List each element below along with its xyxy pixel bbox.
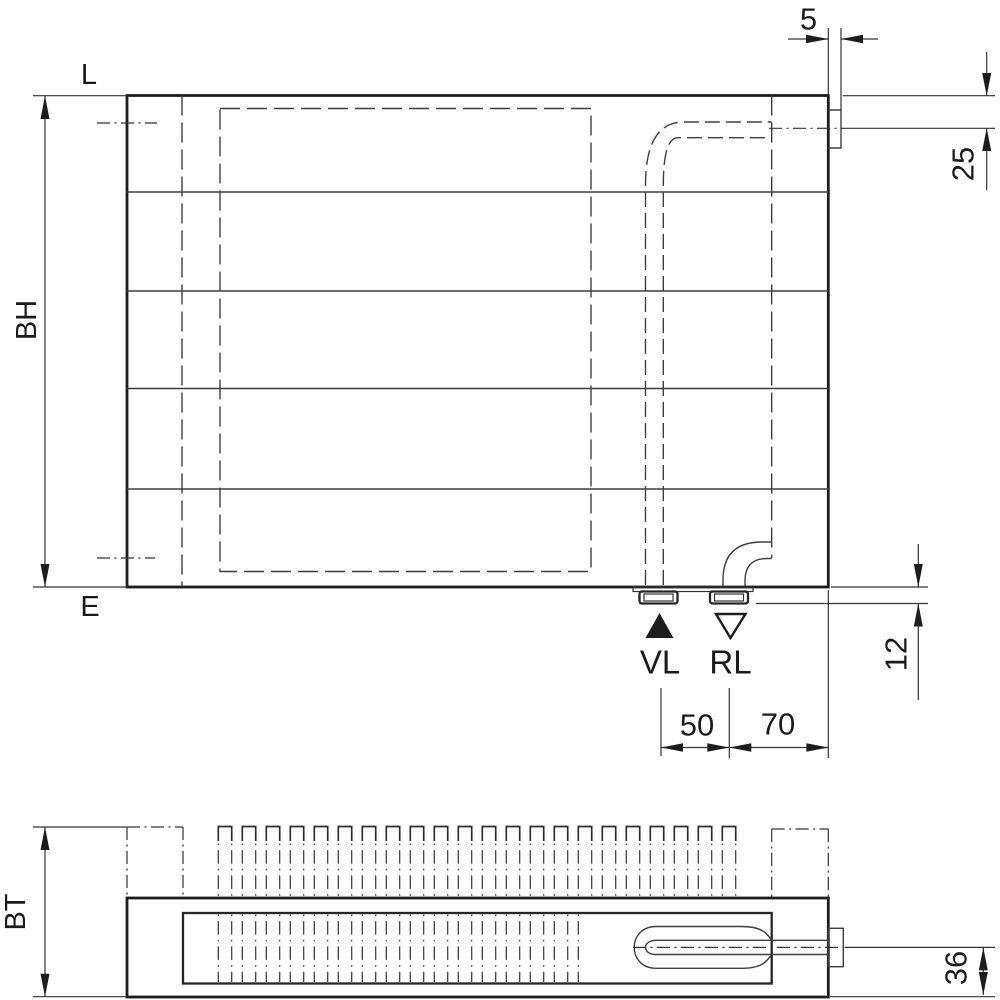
plan-inner-box — [183, 913, 772, 984]
convector-fins-hidden — [218, 915, 578, 983]
dim-50-value: 50 — [680, 708, 714, 743]
convector-fins — [218, 827, 735, 898]
alignment-marks-left — [127, 827, 183, 897]
dim-valve-protrusion: 5 — [788, 2, 878, 111]
dim-36-value: 36 — [939, 951, 974, 985]
panel-section-lines — [127, 192, 828, 489]
return-flow-icon — [716, 614, 746, 638]
radiator-drawing: VL RL L E BH 5 — [0, 0, 1000, 1000]
height-label: BH — [11, 300, 43, 340]
dim-70-value: 70 — [761, 707, 795, 742]
label-bottom-left: E — [80, 591, 99, 623]
dim-5-value: 5 — [800, 2, 817, 37]
return-label: RL — [709, 644, 751, 681]
dim-axis-to-face: 36 — [830, 947, 995, 996]
depth-label: BT — [0, 893, 32, 930]
connection-stubs — [633, 587, 753, 604]
dim-12-value: 12 — [879, 637, 914, 671]
dim-depth-bt: BT — [0, 827, 127, 997]
technical-drawing-page: VL RL L E BH 5 — [0, 0, 1000, 1000]
alignment-marks-right — [772, 829, 829, 897]
dim-axis-from-top: 25 — [769, 52, 995, 190]
valve-tail-tab — [828, 110, 841, 148]
dim-height-bh: BH — [11, 96, 127, 587]
supply-label: VL — [640, 644, 680, 681]
return-pipe-elbow — [723, 542, 772, 586]
dim-stub-protrusion: 12 — [756, 544, 928, 700]
dim-25-value: 25 — [946, 147, 981, 181]
front-view: VL RL L E BH 5 — [11, 2, 995, 759]
hidden-inner-panel — [220, 109, 591, 572]
radiator-outline — [127, 96, 828, 588]
plan-view: BT 36 — [0, 827, 995, 998]
label-top-left: L — [81, 59, 97, 91]
supply-flow-icon — [646, 613, 674, 638]
